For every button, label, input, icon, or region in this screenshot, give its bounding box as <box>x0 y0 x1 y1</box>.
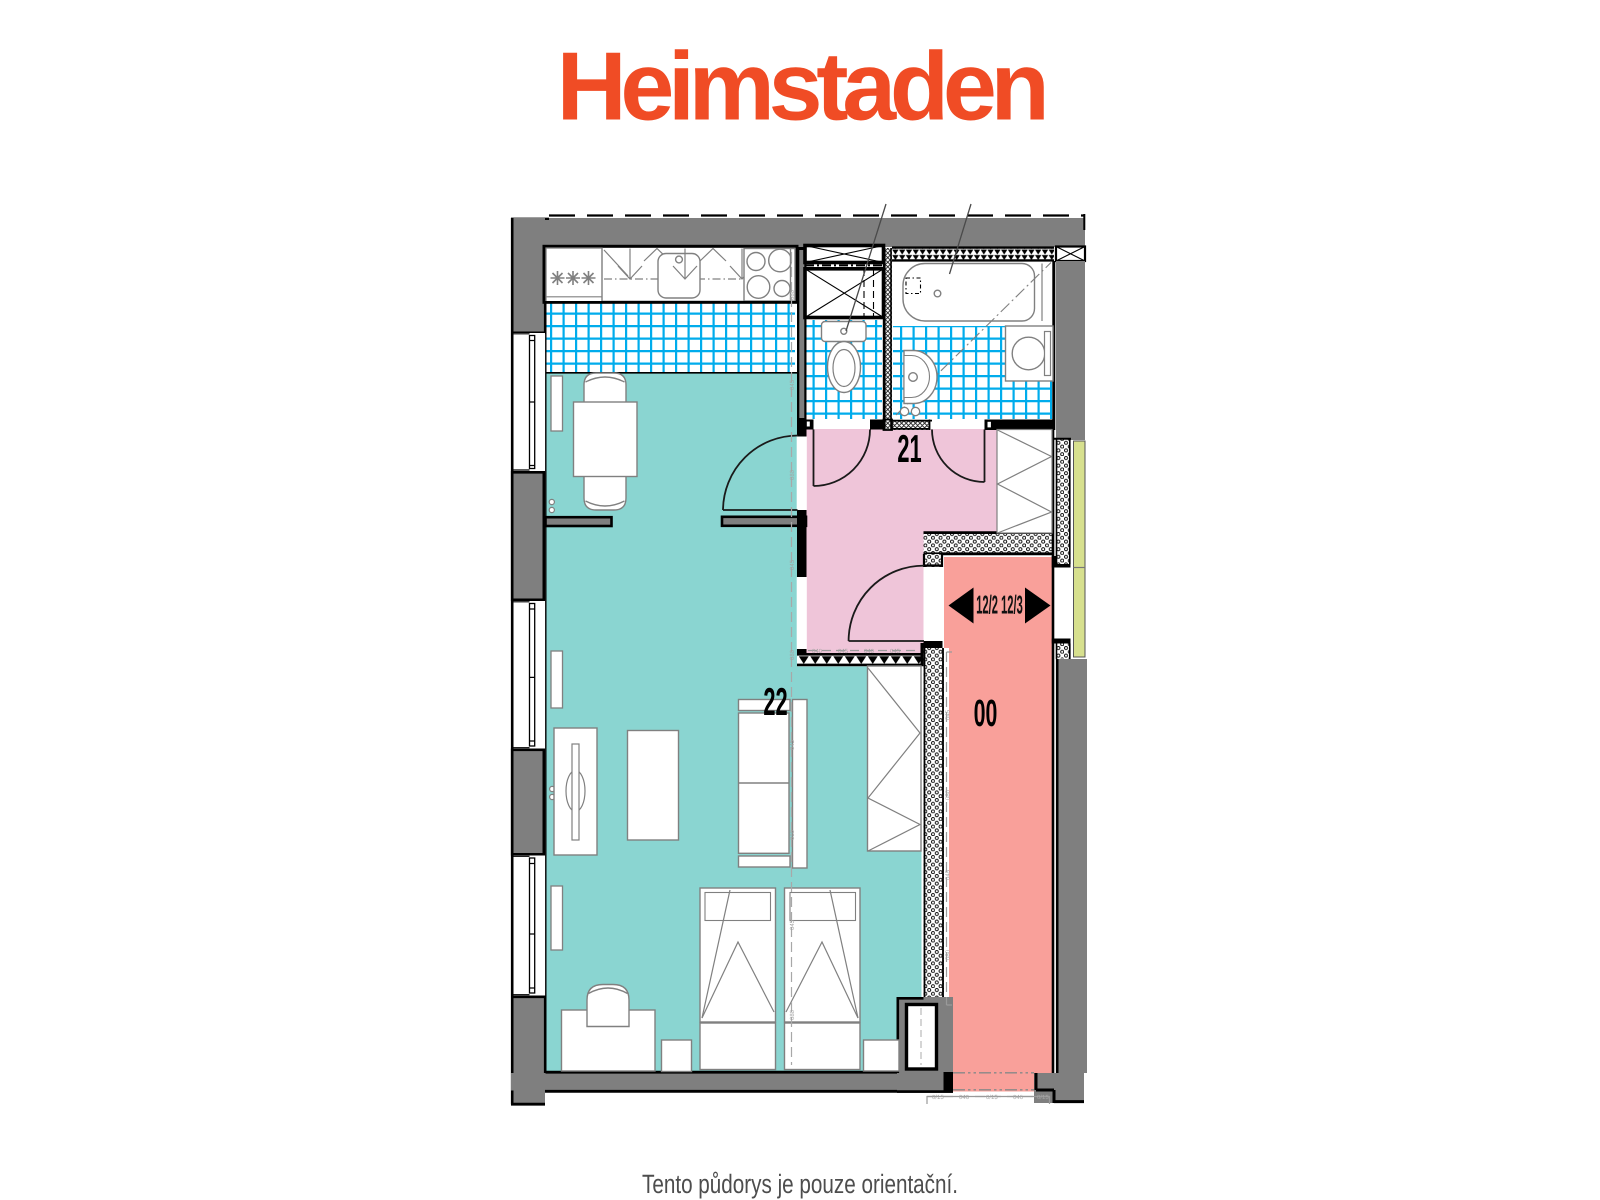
svg-text:0/15: 0/15 <box>932 1094 944 1101</box>
svg-text:045: 045 <box>838 648 849 655</box>
svg-text:080: 080 <box>789 829 796 840</box>
svg-text:045: 045 <box>945 869 952 880</box>
svg-text:080: 080 <box>789 649 796 660</box>
svg-text:046: 046 <box>959 1094 970 1101</box>
svg-text:045: 045 <box>789 739 796 750</box>
svg-text:Heimstaden: Heimstaden <box>557 32 1045 141</box>
svg-text:040: 040 <box>864 648 875 655</box>
svg-text:046: 046 <box>1013 1094 1024 1101</box>
svg-text:045: 045 <box>789 379 796 390</box>
svg-text:080: 080 <box>789 289 796 300</box>
svg-text:080: 080 <box>789 1009 796 1020</box>
svg-text:080: 080 <box>945 789 952 800</box>
svg-text:045: 045 <box>945 709 952 720</box>
svg-text:045: 045 <box>789 559 796 570</box>
svg-text:080: 080 <box>945 949 952 960</box>
svg-text:080: 080 <box>789 469 796 480</box>
svg-text:045: 045 <box>890 648 901 655</box>
svg-text:Tento půdorys je pouze orienta: Tento půdorys je pouze orientační. <box>642 1169 958 1199</box>
svg-text:045: 045 <box>789 919 796 930</box>
svg-text:040: 040 <box>812 648 823 655</box>
svg-text:0/15: 0/15 <box>986 1094 998 1101</box>
svg-text:0/15: 0/15 <box>1037 1094 1049 1101</box>
